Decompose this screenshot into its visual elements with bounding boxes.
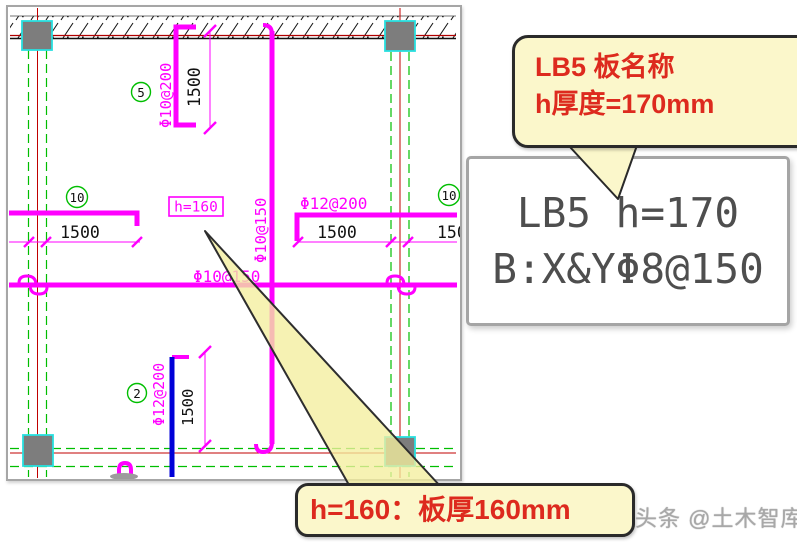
- cad-note-line2: B:X&YΦ8@150: [492, 241, 764, 297]
- column-bottom-right: [385, 437, 415, 466]
- dim-top: 1500: [185, 67, 204, 107]
- callout-bottom-text: h=160：板厚160mm: [310, 494, 571, 525]
- bubble-5: 5: [137, 85, 145, 100]
- cad-note-box: LB5 h=170 B:X&YΦ8@150: [466, 156, 790, 326]
- label-rebar-right-horizontal: Φ12@200: [300, 194, 367, 213]
- label-rebar-center-horizontal: Φ10@150: [193, 267, 260, 286]
- bubble-10-right: 10: [441, 188, 456, 203]
- bubble-2: 2: [133, 386, 141, 401]
- label-rebar-bottom-vertical: Φ12@200: [150, 363, 168, 426]
- gray-smudge: [110, 473, 138, 479]
- dim-left: 1500: [60, 223, 100, 242]
- slab-thickness-tag: h=160: [169, 197, 223, 216]
- slab-plan-drawing: Φ10@200 Φ10@150 Φ10@150 Φ12@200 Φ12@200 …: [6, 5, 462, 481]
- watermark: 头条 @土木智库: [635, 501, 797, 533]
- cad-note-line1: LB5 h=170: [517, 185, 739, 241]
- label-rebar-top-vertical: Φ10@200: [157, 63, 175, 128]
- column-bottom-left: [23, 435, 53, 466]
- dim-right: 1500: [317, 223, 357, 242]
- dim-right-edge: 1500: [437, 223, 460, 242]
- label-rebar-center-vertical: Φ10@150: [252, 198, 270, 263]
- columns: [22, 21, 415, 466]
- callout-top-line2: h厚度=170mm: [535, 86, 797, 123]
- dim-bottom: 1500: [179, 389, 197, 426]
- callout-top-line1: LB5 板名称: [535, 49, 797, 86]
- column-top-right: [385, 21, 415, 51]
- callout-bottom: h=160：板厚160mm: [295, 483, 635, 537]
- rebar-bars: [9, 25, 457, 479]
- slab-thickness-tag-text: h=160: [174, 200, 218, 216]
- grid-dashed-lines: [10, 50, 456, 477]
- callout-top: LB5 板名称 h厚度=170mm: [512, 35, 797, 148]
- column-top-left: [22, 21, 52, 50]
- bubble-10-left: 10: [69, 190, 84, 205]
